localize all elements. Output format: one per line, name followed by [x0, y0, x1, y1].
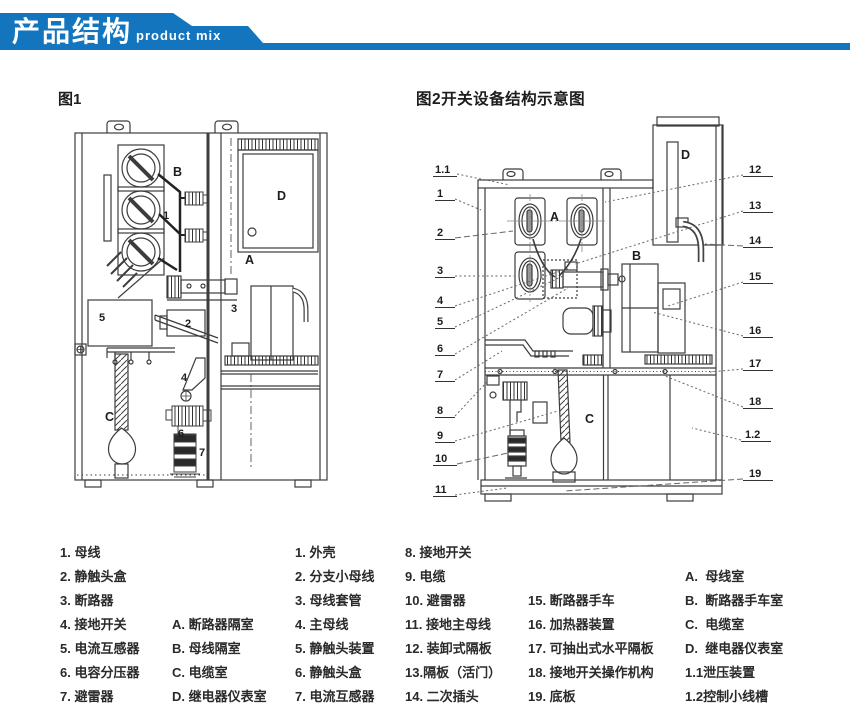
- fig1-ct6: [166, 406, 211, 426]
- legend-item: 6. 电容分压器: [60, 661, 139, 685]
- legend-item: 5. 静触头装置: [295, 637, 374, 661]
- fig2-callout-1: 1: [437, 188, 443, 200]
- page-title: 产品结构: [12, 16, 132, 47]
- legend-item: B. 母线隔室: [172, 637, 267, 661]
- legend-item: 4. 接地开关: [60, 613, 139, 637]
- fig2-callout-18: 18: [749, 396, 761, 408]
- legend-item: 8. 接地开关: [405, 541, 501, 565]
- fig2-room-A: A: [550, 210, 559, 224]
- fig2-callout-4: 4: [437, 295, 444, 307]
- fig2-title: 图2开关设备结构示意图: [416, 87, 585, 109]
- mounting-lug-icon: [601, 169, 621, 180]
- fig1-current-transformers: [185, 192, 209, 242]
- fig1-room-D: D: [277, 189, 286, 203]
- fig1-callout-4: 4: [181, 372, 188, 384]
- legend-item: 16. 加热器装置: [528, 613, 654, 637]
- fig1-callout-6: 6: [178, 428, 184, 440]
- legend-item: 3. 断路器: [60, 589, 139, 613]
- legend-item: D. 继电器仪表室: [685, 637, 783, 661]
- mounting-lug-icon: [503, 169, 523, 180]
- legend-fig2-rooms: A. 母线室 B. 断路器手车室 C. 电缆室 D. 继电器仪表室 1.1泄压装…: [685, 565, 783, 709]
- fig1-callout-1: 1: [163, 210, 169, 222]
- legend-item: D. 继电器仪表室: [172, 685, 267, 709]
- legend-fig2-col3: 15. 断路器手车 16. 加热器装置 17. 可抽出式水平隔板 18. 接地开…: [528, 589, 654, 709]
- fig2-callout-8: 8: [437, 405, 443, 417]
- fig2-callout-2: 2: [437, 227, 443, 239]
- page-subtitle: product mix: [136, 28, 221, 43]
- fig1-room-B: B: [173, 165, 182, 179]
- fig1-breaker-box: [160, 310, 205, 336]
- fig1-cabinet: [75, 121, 327, 487]
- fig2-room-D: D: [681, 148, 690, 162]
- legend-item: 12. 装卸式隔板: [405, 637, 501, 661]
- legend-item: 13.隔板（活门）: [405, 661, 501, 685]
- legend-item: 2. 分支小母线: [295, 565, 374, 589]
- fig2-cable-room: [487, 370, 670, 482]
- fig2-callout-16: 16: [749, 325, 761, 337]
- legend-item: 19. 底板: [528, 685, 654, 709]
- legend-item: 5. 电流互感器: [60, 637, 139, 661]
- fig2-callout-15: 15: [749, 271, 761, 283]
- legend-item: 9. 电缆: [405, 565, 501, 589]
- fig2-callout-12: 12: [749, 164, 761, 176]
- legend-item: 17. 可抽出式水平隔板: [528, 637, 654, 661]
- fig2-callout-5: 5: [437, 316, 443, 328]
- fig1-diagram: 1 2 3 4 5 6 7 A B C D: [55, 108, 340, 510]
- fig2-callout-3: 3: [437, 265, 443, 277]
- fig1-room-C: C: [105, 410, 114, 424]
- legend-item: 7. 避雷器: [60, 685, 139, 709]
- legend-item: 15. 断路器手车: [528, 589, 654, 613]
- fig2-callout-10: 10: [435, 453, 447, 465]
- legend-item: B. 断路器手车室: [685, 589, 783, 613]
- legend-fig2-col2: 8. 接地开关 9. 电缆 10. 避雷器 11. 接地主母线 12. 装卸式隔…: [405, 541, 501, 709]
- legend-item: 4. 主母线: [295, 613, 374, 637]
- legend-item: C. 电缆室: [172, 661, 267, 685]
- fig2-diagram: 1.1 1 2 3 4 5 6 7 8 9 10 11 12 13 14 15 …: [415, 112, 795, 514]
- fig2-callout-1-2: 1.2: [745, 429, 760, 441]
- legend-item: 2. 静触头盒: [60, 565, 139, 589]
- legend-fig1-parts: 1. 母线 2. 静触头盒 3. 断路器 4. 接地开关 5. 电流互感器 6.…: [60, 541, 139, 709]
- legend-item: C. 电缆室: [685, 613, 783, 637]
- header-banner: 产品结构 product mix: [0, 0, 850, 56]
- fig1-callout-2: 2: [185, 318, 191, 330]
- legend-item: 1. 外壳: [295, 541, 374, 565]
- fig1-busbar-cables: [158, 174, 185, 272]
- fig1-arrester: [170, 426, 200, 477]
- fig2-callout-13: 13: [749, 200, 761, 212]
- legend-item: 14. 二次插头: [405, 685, 501, 709]
- legend-fig1-rooms: A. 断路器隔室 B. 母线隔室 C. 电缆室 D. 继电器仪表室: [172, 613, 267, 709]
- fig1-mechanism: [167, 276, 237, 300]
- fig1-callout-5: 5: [99, 312, 105, 324]
- fig1-room-A: A: [245, 253, 254, 267]
- legend-item: 1.1泄压装置: [685, 661, 783, 685]
- legend-item: 1. 母线: [60, 541, 139, 565]
- legend-item: 7. 电流互感器: [295, 685, 374, 709]
- catalog-page: 产品结构 product mix 图1 图2开关设备结构示意图: [0, 0, 850, 728]
- fig1-callout-7: 7: [199, 447, 205, 459]
- legend-item: 3. 母线套管: [295, 589, 374, 613]
- fig2-callout-14: 14: [749, 235, 762, 247]
- fig2-room-B: B: [632, 249, 641, 263]
- fig2-callout-19: 19: [749, 468, 761, 480]
- mounting-lug-icon: [215, 121, 238, 133]
- fig2-callout-11: 11: [435, 484, 447, 496]
- fig2-callout-17: 17: [749, 358, 761, 370]
- fig2-callout-6: 6: [437, 343, 443, 355]
- legend-item: 10. 避雷器: [405, 589, 501, 613]
- legend-item: 18. 接地开关操作机构: [528, 661, 654, 685]
- fig2-room-C: C: [585, 412, 594, 426]
- fig1-title: 图1: [58, 88, 81, 109]
- fig2-callout-9: 9: [437, 430, 443, 442]
- legend-fig2-col1: 1. 外壳 2. 分支小母线 3. 母线套管 4. 主母线 5. 静触头装置 6…: [295, 541, 374, 709]
- legend-item: A. 母线室: [685, 565, 783, 589]
- legend-item: A. 断路器隔室: [172, 613, 267, 637]
- fig1-callout-3: 3: [231, 303, 237, 315]
- fig2-callout-1-1: 1.1: [435, 164, 450, 176]
- fig2-callout-7: 7: [437, 369, 443, 381]
- mounting-lug-icon: [107, 121, 130, 133]
- legend-item: 11. 接地主母线: [405, 613, 501, 637]
- legend-item: 6. 静触头盒: [295, 661, 374, 685]
- legend-item: 1.2控制小线槽: [685, 685, 783, 709]
